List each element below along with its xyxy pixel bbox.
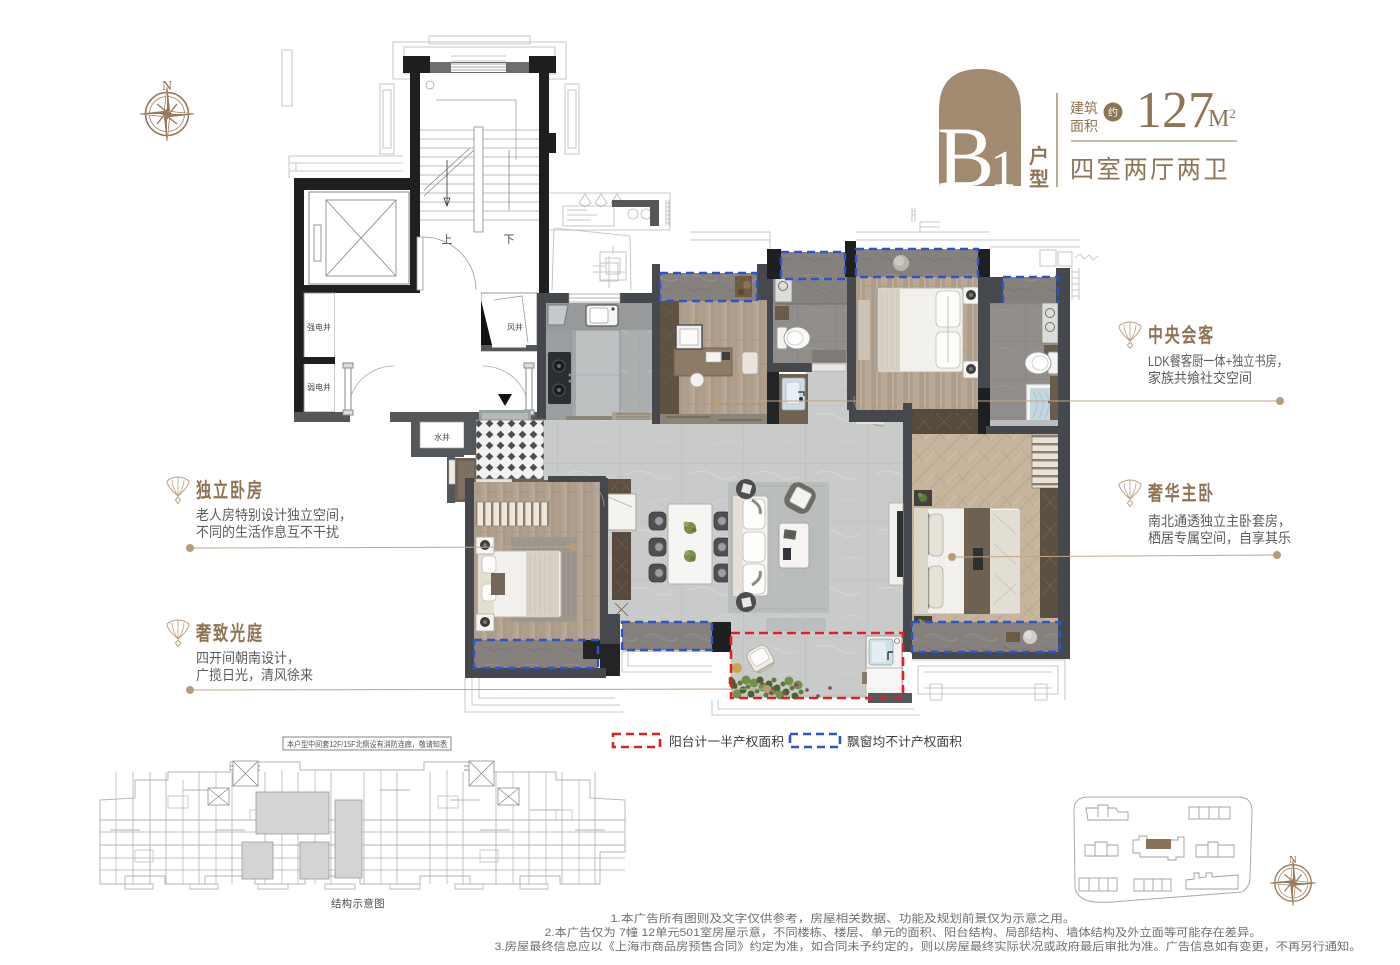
svg-text:奢致光庭: 奢致光庭 [195,621,264,645]
svg-text:127: 127 [1136,82,1214,139]
svg-text:3.房屋最终信息应以《上海市商品房预售合同》约定为准，如合同: 3.房屋最终信息应以《上海市商品房预售合同》约定为准，如合同未予约定的，则以房屋… [495,939,1362,953]
svg-text:结构示意图: 结构示意图 [331,897,385,910]
svg-text:独立卧房: 独立卧房 [196,478,264,502]
svg-text:本户型中间套12F/15F北侧设有消防连廊，敬请知悉: 本户型中间套12F/15F北侧设有消防连廊，敬请知悉 [287,739,447,749]
svg-text:户: 户 [1029,144,1049,168]
svg-text:建筑: 建筑 [1070,100,1098,116]
svg-text:下: 下 [504,234,515,246]
svg-text:四室两厅两卫: 四室两厅两卫 [1070,156,1230,184]
svg-text:老人房特别设计独立空间，: 老人房特别设计独立空间， [196,507,352,523]
svg-text:四开间朝南设计，: 四开间朝南设计， [196,650,300,666]
svg-text:N: N [1289,854,1297,866]
svg-text:上: 上 [442,233,453,246]
svg-text:中央会客: 中央会客 [1148,323,1215,347]
svg-text:2.本广告仅为 7幢 12单元501室房屋示意，不同楼栋、楼: 2.本广告仅为 7幢 12单元501室房屋示意，不同楼栋、楼层、单元的面积、阳台… [545,925,1262,939]
svg-text:飘窗均不计产权面积: 飘窗均不计产权面积 [847,734,962,749]
svg-text:阳台计一半产权面积: 阳台计一半产权面积 [669,734,784,749]
svg-text:N: N [162,79,172,94]
svg-text:1.本广告所有图则及文字仅供参考，房屋相关数据、功能及规划前: 1.本广告所有图则及文字仅供参考，房屋相关数据、功能及规划前景仅为示意之用。 [611,911,1076,925]
svg-text:面积: 面积 [1070,118,1098,134]
svg-text:约: 约 [1108,106,1118,119]
svg-text:弱电井: 弱电井 [307,382,331,392]
svg-text:水井: 水井 [434,432,450,442]
svg-text:奢华主卧: 奢华主卧 [1147,481,1215,505]
svg-text:南北通透独立主卧套房，: 南北通透独立主卧套房， [1148,513,1291,529]
svg-text:栖居专属空间，自享其乐: 栖居专属空间，自享其乐 [1148,530,1291,546]
svg-text:家族共飨社交空间: 家族共飨社交空间 [1148,370,1252,386]
svg-text:风井: 风井 [507,322,523,332]
svg-text:广揽日光，清风徐来: 广揽日光，清风徐来 [196,667,313,683]
svg-text:LDK餐客厨一体+独立书房，: LDK餐客厨一体+独立书房， [1148,353,1288,369]
svg-text:强电井: 强电井 [307,322,331,332]
svg-text:型: 型 [1029,168,1049,191]
svg-text:不同的生活作息互不干扰: 不同的生活作息互不干扰 [196,524,339,540]
